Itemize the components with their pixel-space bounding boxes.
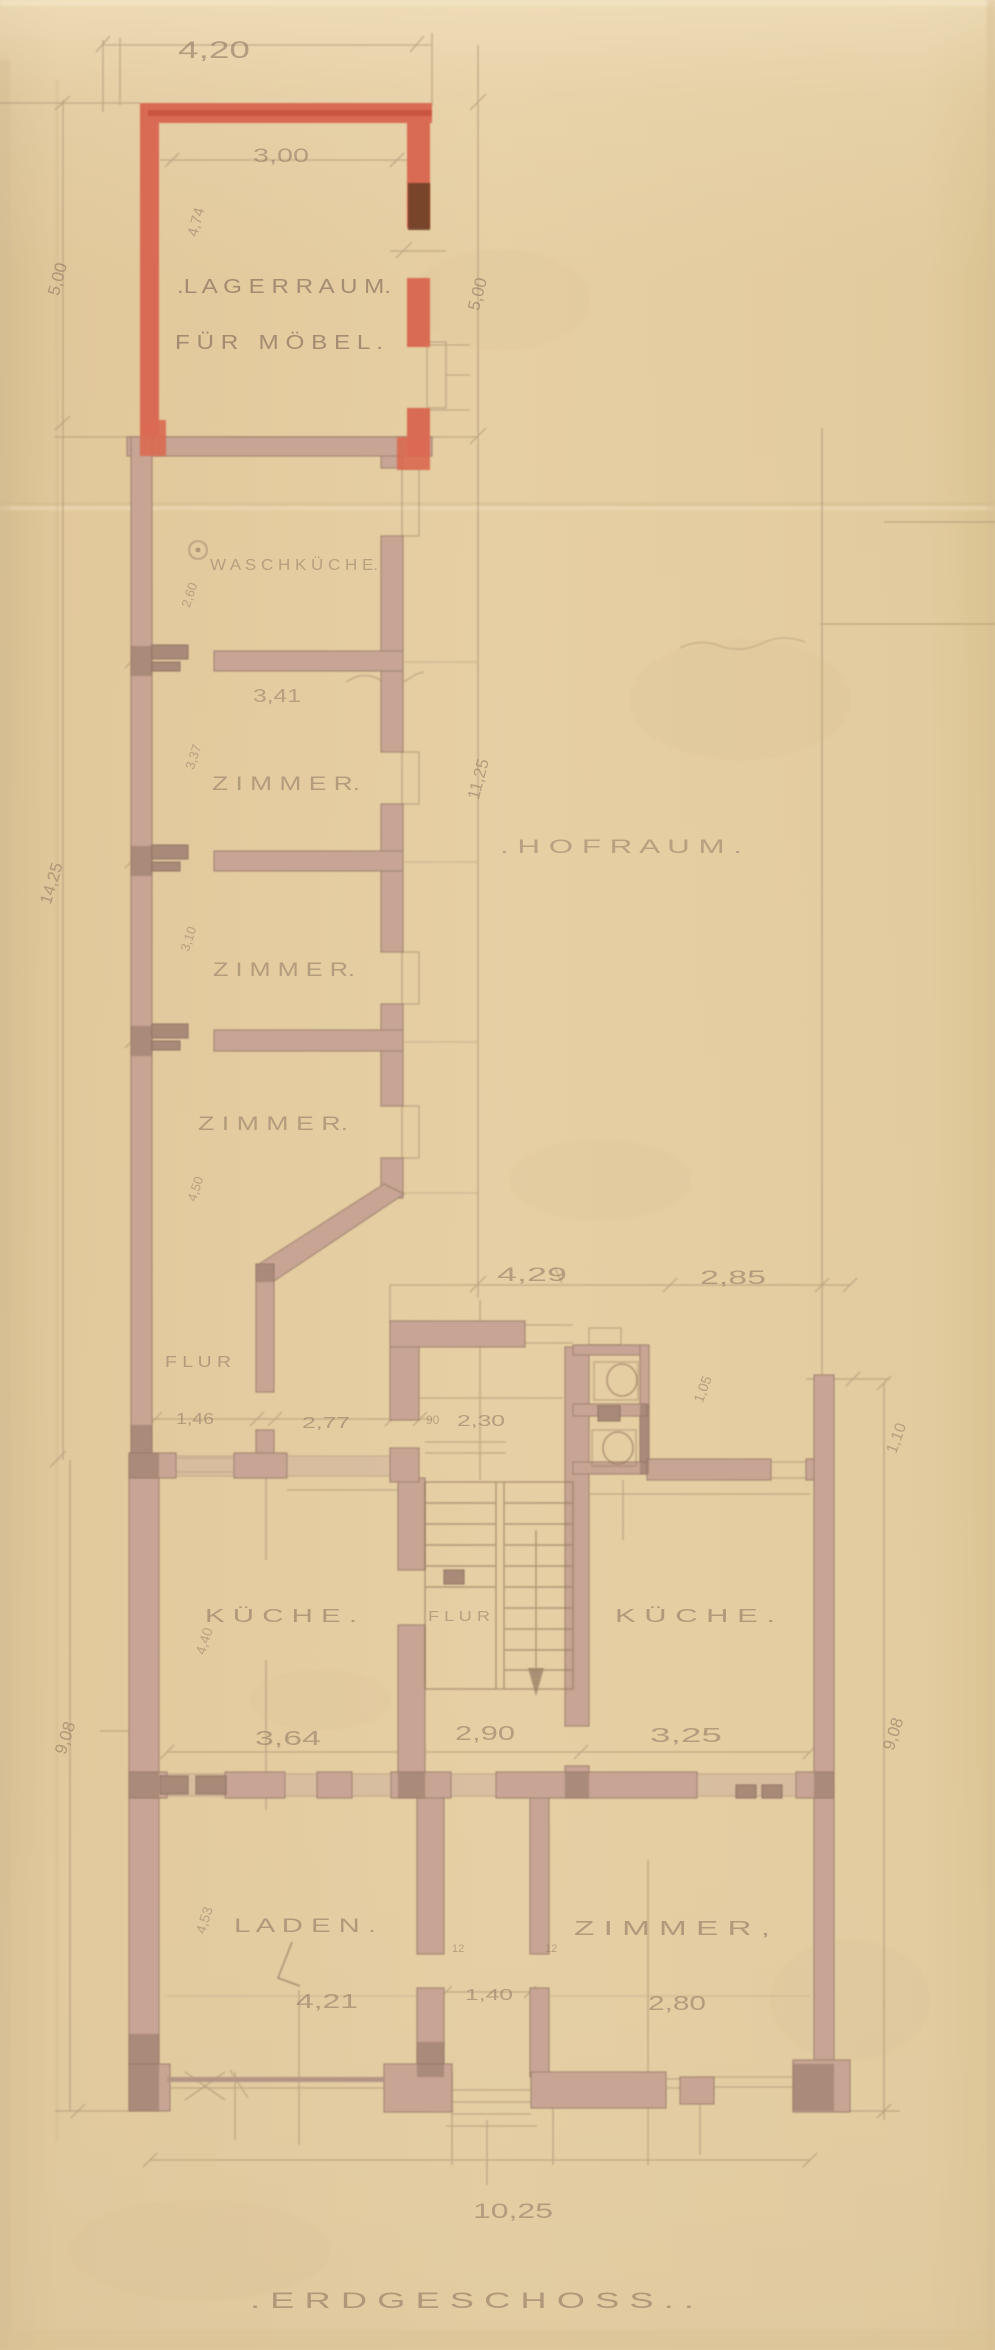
svg-text:90: 90 [426,1413,440,1427]
svg-text:3,25: 3,25 [650,1725,722,1747]
svg-text:4,21: 4,21 [296,1991,358,2013]
svg-text:2,30: 2,30 [457,1413,505,1430]
svg-text:K Ü C H E .: K Ü C H E . [615,1606,775,1626]
svg-text:F L U R: F L U R [165,1354,231,1371]
svg-text:3,64: 3,64 [255,1728,321,1750]
svg-text:12: 12 [452,1943,464,1955]
svg-text:2,90: 2,90 [455,1723,515,1745]
svg-text:4,20: 4,20 [178,37,250,64]
svg-text:. H O F R A U M .: . H O F R A U M . [500,837,742,858]
svg-text:2,80: 2,80 [648,1993,706,2015]
svg-text:F L U R: F L U R [428,1608,490,1625]
svg-text:.L A G E R R A U M.: .L A G E R R A U M. [177,276,391,298]
svg-text:3,00: 3,00 [253,146,309,167]
svg-text:Z I M M E R.: Z I M M E R. [213,960,355,981]
svg-text:Z I M M E R ,: Z I M M E R , [574,1918,770,1940]
svg-text:F Ü R M Ö B E L .: F Ü R M Ö B E L . [175,332,383,354]
svg-text:4,29: 4,29 [497,1265,567,1286]
svg-text:K Ü C H E .: K Ü C H E . [205,1606,357,1626]
svg-text:W A S C H K Ü C H E.: W A S C H K Ü C H E. [210,556,378,574]
svg-text:. E R D G E S C H O S S . .: . E R D G E S C H O S S . . [250,2288,694,2313]
svg-text:1,46: 1,46 [176,1411,214,1428]
svg-text:L A D E N .: L A D E N . [234,1916,376,1937]
svg-text:1,40: 1,40 [465,1987,513,2004]
svg-text:2,77: 2,77 [302,1415,350,1432]
svg-text:Z I M M E R.: Z I M M E R. [198,1114,348,1135]
svg-text:Z I M M E R.: Z I M M E R. [212,774,360,795]
svg-text:10,25: 10,25 [473,2200,553,2223]
svg-text:3,41: 3,41 [253,686,301,706]
svg-text:2,85: 2,85 [700,1268,766,1289]
svg-text:12: 12 [545,1943,557,1955]
